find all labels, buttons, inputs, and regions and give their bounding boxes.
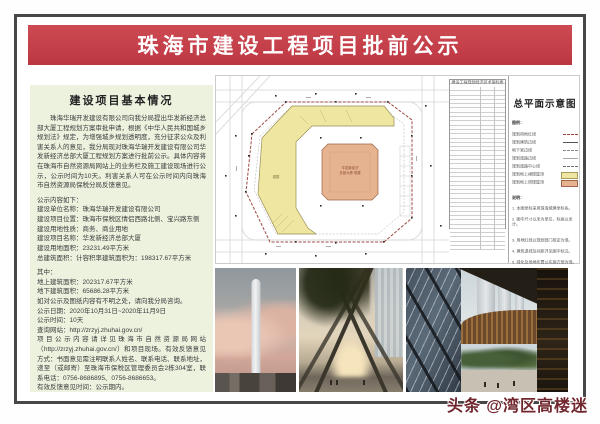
legend-item: 规划道路边线 [512,155,578,163]
field-land-area: 建设用地面积：23231.49平方米 [37,244,206,254]
indicator-table-row [450,246,505,250]
note-line: 4. 建筑退线及间距详见图中标注。 [512,249,578,254]
red-dashed-line-sample [563,134,578,135]
field-above-ground-area: 地上建筑面积：202317.67平方米 [37,278,206,288]
solid-line-sample [563,142,578,143]
field-publicity-date: 公示日期：2020年10月31日~2020年11月9日 [37,307,206,317]
feedback-time: 有效反馈意见时间：公示期内。 [37,383,206,392]
note-line: 5. 绿化及场地布置以实施方案为准。 [512,260,578,265]
toutiao-watermark: 头条 @湾区高楼迷 [430,392,588,416]
podium-label: 裙楼 [273,174,280,179]
render-photo-tower [215,268,296,392]
legend-item: 地下室边线 [512,147,578,155]
field-location: 建设项目位置：珠海市保税区情侣西路北侧、宝兴路东侧 [37,215,206,225]
courtyard-trees [461,346,537,371]
tower-label-2: 总部大厦 塔楼 [339,170,361,175]
note-line: 3. 用地红线以规划部门核定为准。 [512,238,578,243]
parking-strip [400,146,410,216]
field-total-gfa: 总建筑面积：计容积率建筑面积为：198317.67平方米 [37,254,206,264]
tower-label-1: 华发新经济 [342,165,360,170]
field-land-use: 建设用地性质：商务、商业用地 [37,225,206,235]
page-title: 珠海市建设工程项目批前公示 [138,30,463,60]
legend-title: 图例： [512,120,578,126]
courtyard-plaza [461,370,537,392]
field-publicity-duration: 公示时间：10天 [37,316,206,326]
among-label: 其中： [37,268,206,278]
site-plan-drawing: 华发新经济 总部大厦 塔楼 裙楼 [216,76,449,263]
sheet-title: 总平面示意图 [512,96,578,110]
field-project-name: 建设项目名称：华发新经济总部大厦 [37,234,206,244]
tower-silhouette [251,279,260,373]
sheet-right-panel: 总平面示意图 图例： 规划用地红线 规划建筑边线 地下室边线 [512,84,578,271]
legend-item: 规划建筑边线 [512,139,578,147]
field-underground-area: 地下建筑面积：65686.28平方米 [37,287,206,297]
pedestrian-figure [330,380,332,385]
note-line: 2. 图中尺寸以米为单位，标高以米计。 [512,217,578,227]
indicator-table-rows [450,87,505,250]
notice-remark: 如对公示及图纸内容有不明之处，请向我分局咨询。 [37,297,206,307]
notice-intro: 珠海华瑞开发建设有限公司向我分局提出华发新经济总部大厦工程规划方案审批申请，根据… [37,114,206,191]
render-photo-strip [215,268,580,392]
tower-orange-swatch [561,180,578,187]
field-unit-name: 建设单位名称：珠海华瑞开发建设有限公司 [37,205,206,215]
page-frame: 珠海市建设工程项目批前公示 建设项目基本情况 珠海华瑞开发建设有限公司向我分局提… [14,14,586,404]
pedestrian-figure [513,381,515,386]
notice-text-panel: 建设项目基本情况 珠海华瑞开发建设有限公司向我分局提出华发新经济总部大厦工程规划… [30,85,213,392]
diagonal-glass-facade [406,268,461,392]
indicator-table-title: 建设工程规划经济技术指标表 [450,80,505,84]
notes-title: 说明： [512,195,578,201]
legend-item: 规划地上塔楼屋顶 [512,179,578,187]
section-title: 建设项目基本情况 [37,92,206,108]
pedestrian-figure [484,382,486,387]
legend-item: 规划道路中心线 [512,163,578,171]
pedestrian-figure [336,380,338,385]
notice-page: 珠海市建设工程项目批前公示 建设项目基本情况 珠海华瑞开发建设有限公司向我分局提… [0,0,600,424]
city-skyline-base [215,373,296,392]
notes: 说明： 1. 本图坐标采用珠海城建坐标系。 2. 图中尺寸以米为单位，标高以米计… [512,195,578,270]
title-banner: 珠海市建设工程项目批前公示 [28,25,572,65]
podium-yellow-swatch [561,172,578,179]
legend-item: 规划地上裙楼屋顶 [512,171,578,179]
indicator-table: 建设工程规划经济技术指标表 [449,79,506,229]
legend-item: 规划用地红线 [512,131,578,139]
road-line-sample [563,158,578,159]
site-plan-sheet: 华发新经济 总部大厦 塔楼 裙楼 [215,75,580,264]
pedestrian-figure [497,383,499,388]
field-query-website: 查询网站：http://zrzyj.zhuhai.gov.cn/ [37,326,206,336]
render-photo-courtyard [406,268,568,392]
render-photo-entrance [299,268,403,392]
palm-tree-silhouette [299,268,370,332]
legend: 图例： 规划用地红线 规划建筑边线 地下室边线 规划道路边线 [512,120,578,187]
dark-wall-edge [537,268,568,392]
feedback-instructions: 项目公示内容请详见珠海市自然资源局网站（http://zrzyj.zhuhai.… [37,335,206,383]
note-line: 1. 本图坐标采用珠海城建坐标系。 [512,206,578,211]
centerline-sample [563,166,578,167]
pedestrian-figure [363,380,365,385]
sheet-divider [508,76,509,263]
dashed-line-sample [563,150,578,151]
content-label: 公示内容如下： [37,196,206,206]
